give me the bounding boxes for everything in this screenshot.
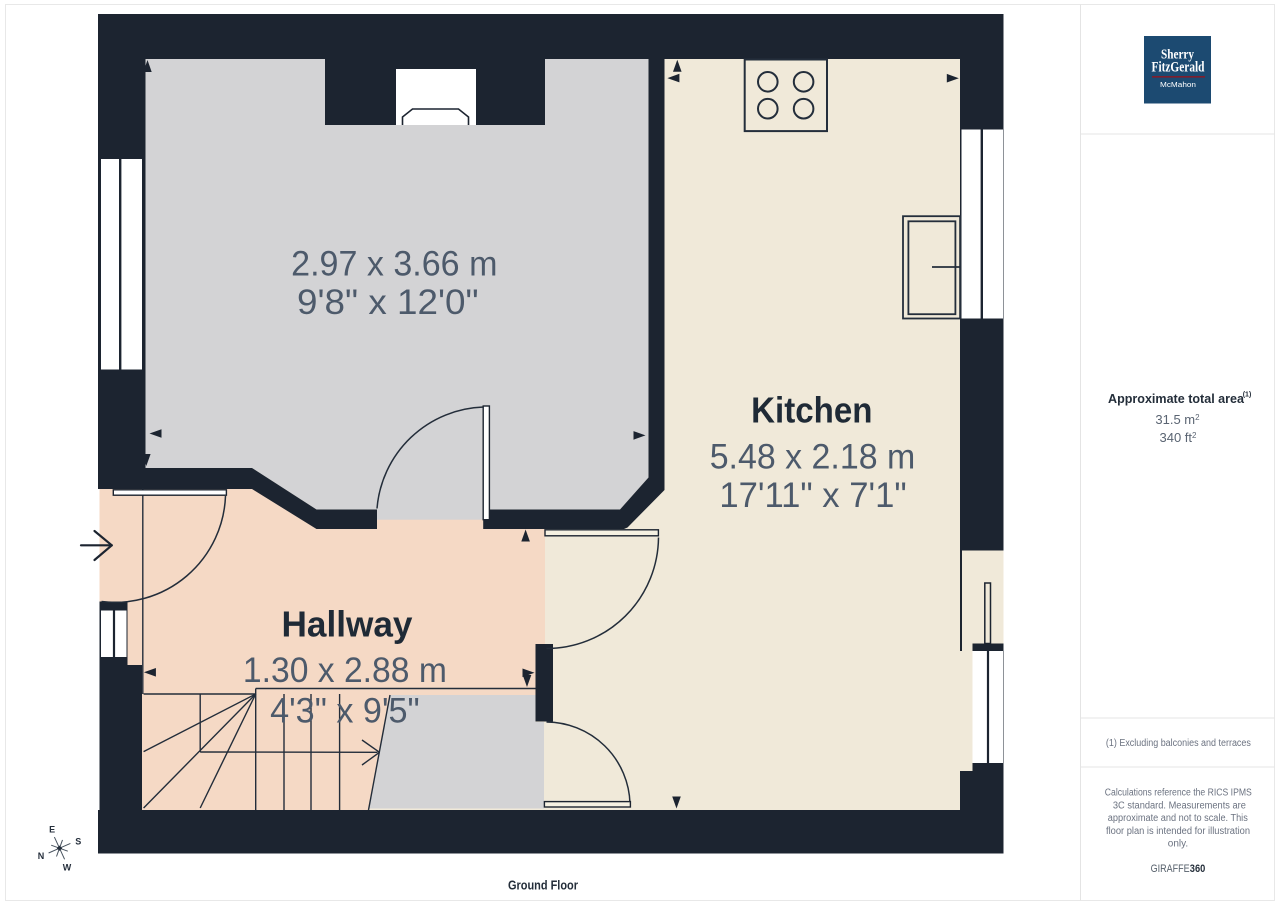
svg-text:N: N <box>38 851 45 861</box>
svg-text:GIRAFFE: GIRAFFE <box>1151 863 1190 875</box>
svg-text:360: 360 <box>1190 863 1206 875</box>
svg-text:(1) Excluding balconies and te: (1) Excluding balconies and terraces <box>1106 738 1251 749</box>
svg-text:9'8" x 12'0": 9'8" x 12'0" <box>297 283 479 322</box>
svg-text:(1): (1) <box>1243 392 1252 399</box>
svg-text:340 ft2: 340 ft2 <box>1160 430 1198 445</box>
svg-text:Approximate total area: Approximate total area <box>1108 391 1245 406</box>
svg-text:4'3" x 9'5": 4'3" x 9'5" <box>270 692 420 731</box>
svg-text:5.48 x 2.18 m: 5.48 x 2.18 m <box>710 438 916 477</box>
svg-text:3C standard. Measurements are: 3C standard. Measurements are <box>1113 800 1246 811</box>
svg-text:31.5 m2: 31.5 m2 <box>1155 412 1200 427</box>
svg-text:Hallway: Hallway <box>282 603 414 644</box>
svg-text:S: S <box>75 837 81 847</box>
svg-text:only.: only. <box>1168 839 1188 850</box>
svg-text:Calculations reference the RIC: Calculations reference the RICS IPMS <box>1105 788 1252 799</box>
svg-text:Kitchen: Kitchen <box>751 390 872 431</box>
svg-text:W: W <box>63 862 72 872</box>
svg-text:floor plan is intended for ill: floor plan is intended for illustration <box>1106 826 1250 837</box>
svg-text:E: E <box>49 825 55 835</box>
svg-text:17'11" x 7'1": 17'11" x 7'1" <box>719 476 906 515</box>
svg-text:McMahon: McMahon <box>1160 80 1196 89</box>
svg-text:FitzGerald: FitzGerald <box>1152 60 1205 76</box>
svg-text:Ground Floor: Ground Floor <box>508 878 578 893</box>
svg-text:2.97 x 3.66 m: 2.97 x 3.66 m <box>291 245 497 284</box>
svg-text:approximate and not to scale.: approximate and not to scale. This <box>1108 813 1248 824</box>
svg-text:1.30 x 2.88 m: 1.30 x 2.88 m <box>243 651 447 690</box>
